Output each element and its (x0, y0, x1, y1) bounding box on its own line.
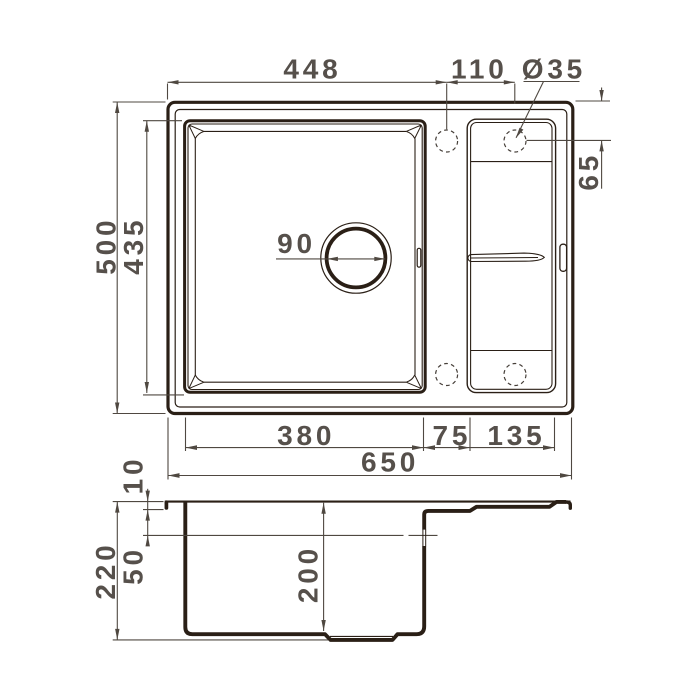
svg-text:220: 220 (90, 541, 121, 599)
svg-text:380: 380 (277, 420, 335, 451)
svg-text:500: 500 (91, 217, 122, 275)
svg-text:110: 110 (451, 53, 508, 84)
svg-text:10: 10 (118, 456, 149, 495)
svg-text:65: 65 (573, 152, 604, 191)
svg-text:200: 200 (293, 545, 324, 603)
svg-text:650: 650 (361, 446, 419, 477)
svg-text:50: 50 (118, 546, 149, 585)
svg-text:Ø35: Ø35 (522, 53, 586, 84)
svg-text:448: 448 (283, 53, 341, 84)
svg-text:135: 135 (487, 420, 545, 451)
svg-text:75: 75 (433, 420, 472, 451)
svg-text:435: 435 (118, 217, 149, 275)
svg-text:90: 90 (277, 228, 316, 259)
